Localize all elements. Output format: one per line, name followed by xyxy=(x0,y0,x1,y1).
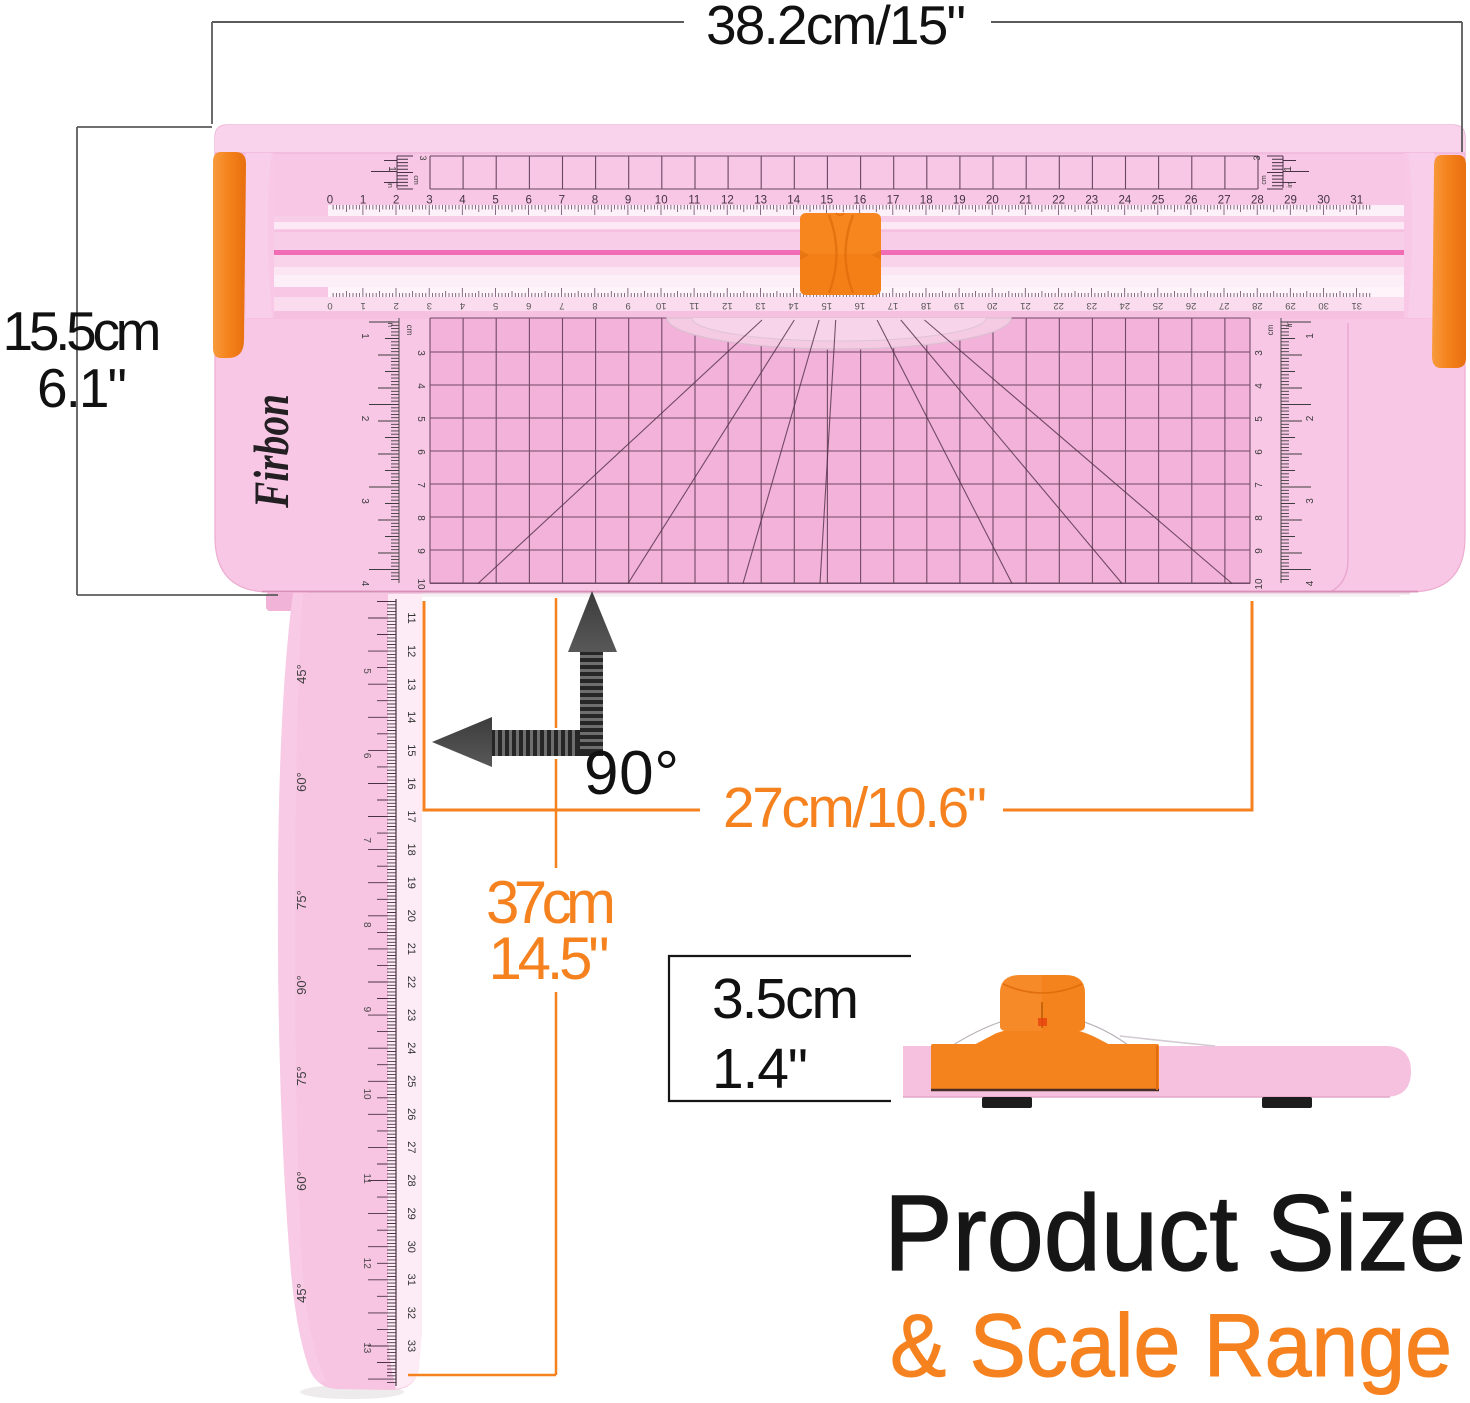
svg-text:17: 17 xyxy=(887,195,900,207)
svg-text:31: 31 xyxy=(1350,195,1363,207)
svg-text:38.2cm/15": 38.2cm/15" xyxy=(706,0,966,56)
svg-text:26: 26 xyxy=(405,1108,417,1120)
svg-text:45°: 45° xyxy=(294,664,309,684)
svg-text:1: 1 xyxy=(1283,166,1294,172)
svg-text:4: 4 xyxy=(359,581,370,587)
svg-text:8: 8 xyxy=(1254,515,1265,521)
svg-text:45°: 45° xyxy=(294,1283,309,1303)
svg-text:30: 30 xyxy=(1318,300,1329,311)
svg-text:6: 6 xyxy=(1254,449,1265,455)
svg-text:1.4": 1.4" xyxy=(712,1037,808,1101)
svg-text:11: 11 xyxy=(689,300,699,311)
svg-text:27cm/10.6": 27cm/10.6" xyxy=(723,776,987,840)
svg-text:4: 4 xyxy=(459,195,466,207)
svg-text:14.5": 14.5" xyxy=(489,925,610,992)
svg-text:30: 30 xyxy=(1317,195,1330,207)
svg-text:2: 2 xyxy=(394,300,399,311)
svg-text:27: 27 xyxy=(1218,195,1231,207)
svg-text:9: 9 xyxy=(415,548,426,554)
svg-text:11: 11 xyxy=(405,612,417,623)
svg-text:6: 6 xyxy=(361,753,372,759)
svg-text:15.5cm: 15.5cm xyxy=(3,300,162,362)
svg-text:4: 4 xyxy=(1305,580,1316,586)
svg-text:26: 26 xyxy=(1186,300,1197,311)
svg-text:& Scale Range: & Scale Range xyxy=(890,1295,1452,1395)
svg-text:75°: 75° xyxy=(294,890,309,910)
svg-text:25: 25 xyxy=(1153,300,1164,311)
svg-text:75°: 75° xyxy=(294,1066,309,1086)
svg-text:15: 15 xyxy=(405,744,417,756)
svg-text:8: 8 xyxy=(415,515,426,521)
svg-text:27: 27 xyxy=(1219,300,1230,311)
svg-text:28: 28 xyxy=(405,1174,417,1186)
svg-text:18: 18 xyxy=(921,300,932,311)
svg-text:10: 10 xyxy=(361,1088,372,1100)
svg-text:32: 32 xyxy=(405,1307,417,1319)
svg-text:23: 23 xyxy=(1085,195,1098,207)
svg-text:22: 22 xyxy=(405,976,417,988)
svg-text:8: 8 xyxy=(592,195,598,207)
svg-text:19: 19 xyxy=(405,877,417,889)
svg-text:29: 29 xyxy=(405,1207,417,1219)
svg-text:Product Size: Product Size xyxy=(884,1172,1466,1293)
svg-text:14: 14 xyxy=(405,711,417,723)
svg-text:21: 21 xyxy=(405,943,417,955)
svg-text:30: 30 xyxy=(405,1241,417,1253)
svg-text:13: 13 xyxy=(755,300,766,311)
svg-text:in: in xyxy=(1285,321,1294,327)
svg-text:5: 5 xyxy=(1254,416,1265,422)
svg-text:13: 13 xyxy=(361,1342,372,1354)
svg-text:90°: 90° xyxy=(294,975,309,995)
svg-text:cm: cm xyxy=(405,325,414,336)
svg-text:3: 3 xyxy=(1254,350,1265,356)
svg-text:cm: cm xyxy=(1266,324,1275,335)
svg-text:29: 29 xyxy=(1285,300,1296,311)
svg-text:3.5cm: 3.5cm xyxy=(712,967,859,1031)
svg-text:31: 31 xyxy=(1351,300,1362,311)
svg-text:22: 22 xyxy=(1052,195,1065,207)
svg-text:3: 3 xyxy=(1305,498,1316,504)
svg-text:19: 19 xyxy=(954,300,965,311)
svg-text:5: 5 xyxy=(492,195,498,207)
svg-text:12: 12 xyxy=(721,195,734,207)
svg-text:24: 24 xyxy=(1119,195,1132,207)
svg-text:17: 17 xyxy=(888,300,899,311)
svg-text:0: 0 xyxy=(327,300,332,311)
svg-text:3: 3 xyxy=(415,350,426,356)
svg-text:5: 5 xyxy=(361,668,372,674)
svg-text:6.1": 6.1" xyxy=(37,357,127,419)
svg-text:20: 20 xyxy=(987,300,998,311)
svg-text:Firbon: Firbon xyxy=(243,394,299,509)
svg-text:6: 6 xyxy=(525,195,531,207)
svg-text:15: 15 xyxy=(820,195,833,207)
svg-text:25: 25 xyxy=(1152,195,1165,207)
svg-text:1: 1 xyxy=(386,166,397,172)
svg-text:5: 5 xyxy=(493,300,498,311)
svg-text:28: 28 xyxy=(1251,195,1264,207)
svg-text:13: 13 xyxy=(405,678,417,690)
svg-text:5: 5 xyxy=(415,416,426,422)
svg-text:90°: 90° xyxy=(584,739,679,808)
svg-text:3: 3 xyxy=(418,155,428,160)
svg-text:23: 23 xyxy=(405,1009,417,1021)
svg-text:16: 16 xyxy=(855,300,866,311)
svg-text:10: 10 xyxy=(655,195,668,207)
svg-text:2: 2 xyxy=(1305,415,1316,421)
svg-text:3: 3 xyxy=(426,195,432,207)
svg-text:9: 9 xyxy=(625,300,630,311)
svg-text:16: 16 xyxy=(405,777,417,789)
svg-text:22: 22 xyxy=(1053,300,1064,311)
svg-text:21: 21 xyxy=(1020,300,1031,311)
svg-text:14: 14 xyxy=(787,195,800,207)
svg-text:7: 7 xyxy=(1254,482,1265,488)
svg-text:24: 24 xyxy=(1120,300,1131,311)
svg-text:1: 1 xyxy=(360,300,365,311)
svg-text:9: 9 xyxy=(361,1007,372,1013)
svg-text:11: 11 xyxy=(688,195,700,207)
svg-text:in: in xyxy=(386,321,395,327)
svg-text:23: 23 xyxy=(1087,300,1098,311)
svg-text:7: 7 xyxy=(559,195,565,207)
svg-text:13: 13 xyxy=(754,195,767,207)
svg-text:1: 1 xyxy=(1305,333,1316,339)
svg-text:in: in xyxy=(386,182,393,188)
svg-text:2: 2 xyxy=(393,195,399,207)
svg-text:10: 10 xyxy=(656,300,667,311)
svg-text:12: 12 xyxy=(405,645,417,657)
svg-text:29: 29 xyxy=(1284,195,1297,207)
svg-text:1: 1 xyxy=(360,195,366,207)
svg-text:4: 4 xyxy=(1254,383,1265,389)
svg-text:cm: cm xyxy=(412,175,419,185)
svg-text:28: 28 xyxy=(1252,300,1263,311)
svg-text:3: 3 xyxy=(1252,155,1262,160)
svg-text:cm: cm xyxy=(1261,175,1268,185)
svg-text:10: 10 xyxy=(415,578,426,590)
svg-text:15: 15 xyxy=(822,300,833,311)
svg-text:6: 6 xyxy=(415,449,426,455)
svg-text:16: 16 xyxy=(854,195,867,207)
svg-text:7: 7 xyxy=(415,482,426,488)
svg-text:0: 0 xyxy=(327,195,333,207)
svg-text:12: 12 xyxy=(361,1258,372,1270)
svg-text:10: 10 xyxy=(1254,578,1265,590)
svg-text:26: 26 xyxy=(1185,195,1198,207)
svg-text:31: 31 xyxy=(405,1274,417,1286)
svg-text:7: 7 xyxy=(559,300,564,311)
svg-text:27: 27 xyxy=(405,1141,417,1153)
svg-text:17: 17 xyxy=(405,810,417,822)
svg-text:21: 21 xyxy=(1019,195,1032,207)
svg-text:14: 14 xyxy=(788,300,799,311)
svg-text:6: 6 xyxy=(526,300,531,311)
svg-text:18: 18 xyxy=(405,843,417,855)
svg-text:in: in xyxy=(1287,182,1294,188)
svg-text:8: 8 xyxy=(592,300,597,311)
svg-text:24: 24 xyxy=(405,1042,417,1054)
svg-text:8: 8 xyxy=(361,922,372,928)
svg-text:11: 11 xyxy=(361,1173,372,1184)
svg-text:20: 20 xyxy=(405,910,417,922)
svg-text:25: 25 xyxy=(405,1075,417,1087)
svg-text:60°: 60° xyxy=(294,1171,309,1191)
svg-text:4: 4 xyxy=(415,383,426,389)
svg-text:18: 18 xyxy=(920,195,933,207)
svg-text:4: 4 xyxy=(460,300,465,311)
svg-text:3: 3 xyxy=(427,300,432,311)
svg-text:19: 19 xyxy=(953,195,966,207)
svg-text:7: 7 xyxy=(361,837,372,843)
svg-text:12: 12 xyxy=(722,300,733,311)
svg-text:9: 9 xyxy=(1254,548,1265,554)
svg-text:60°: 60° xyxy=(294,772,309,792)
svg-text:3: 3 xyxy=(359,498,370,504)
svg-text:9: 9 xyxy=(625,195,631,207)
svg-text:33: 33 xyxy=(405,1340,417,1352)
svg-text:20: 20 xyxy=(986,195,999,207)
svg-text:1: 1 xyxy=(359,333,370,339)
svg-text:2: 2 xyxy=(359,416,370,422)
